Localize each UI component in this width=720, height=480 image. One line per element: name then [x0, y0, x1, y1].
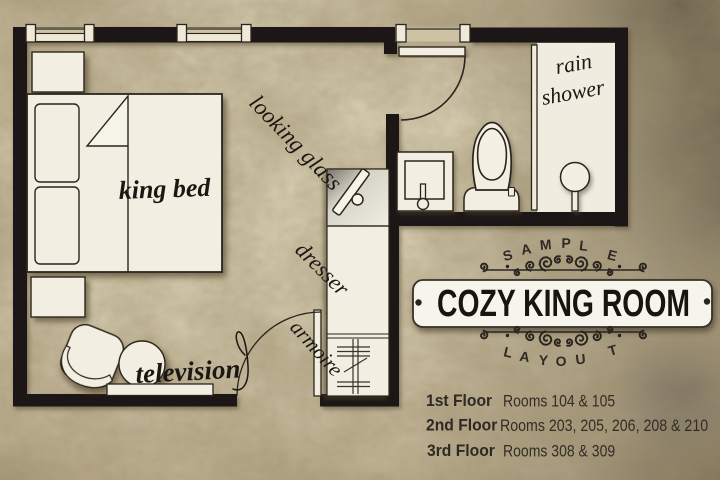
svg-text:Rooms 104 & 105: Rooms 104 & 105 — [503, 392, 615, 410]
svg-text:L: L — [502, 343, 514, 361]
svg-text:shower: shower — [539, 74, 606, 110]
svg-text:O: O — [556, 353, 567, 369]
svg-text:U: U — [575, 351, 587, 368]
svg-text:2nd Floor: 2nd Floor — [426, 416, 498, 434]
svg-text:3rd Floor: 3rd Floor — [427, 442, 496, 460]
svg-text:dresser: dresser — [290, 237, 354, 301]
svg-text:Rooms 308 & 309: Rooms 308 & 309 — [503, 442, 615, 460]
svg-text:armoire: armoire — [285, 315, 348, 381]
svg-text:A: A — [520, 240, 533, 258]
svg-text:1st Floor: 1st Floor — [426, 392, 493, 410]
svg-text:rain: rain — [553, 48, 593, 79]
svg-text:COZY KING ROOM: COZY KING ROOM — [437, 283, 690, 325]
svg-text:E: E — [606, 246, 619, 264]
svg-text:television: television — [135, 354, 241, 389]
svg-text:king bed: king bed — [118, 173, 212, 205]
svg-text:looking glass: looking glass — [244, 90, 347, 195]
svg-text:P: P — [561, 235, 571, 251]
svg-text:Rooms 203, 205, 206, 208 & 210: Rooms 203, 205, 206, 208 & 210 — [500, 417, 708, 435]
svg-text:Y: Y — [538, 352, 549, 369]
svg-text:T: T — [606, 341, 619, 359]
svg-text:S: S — [501, 246, 514, 264]
svg-text:L: L — [578, 237, 589, 254]
svg-text:A: A — [519, 348, 531, 365]
svg-text:M: M — [539, 236, 552, 253]
